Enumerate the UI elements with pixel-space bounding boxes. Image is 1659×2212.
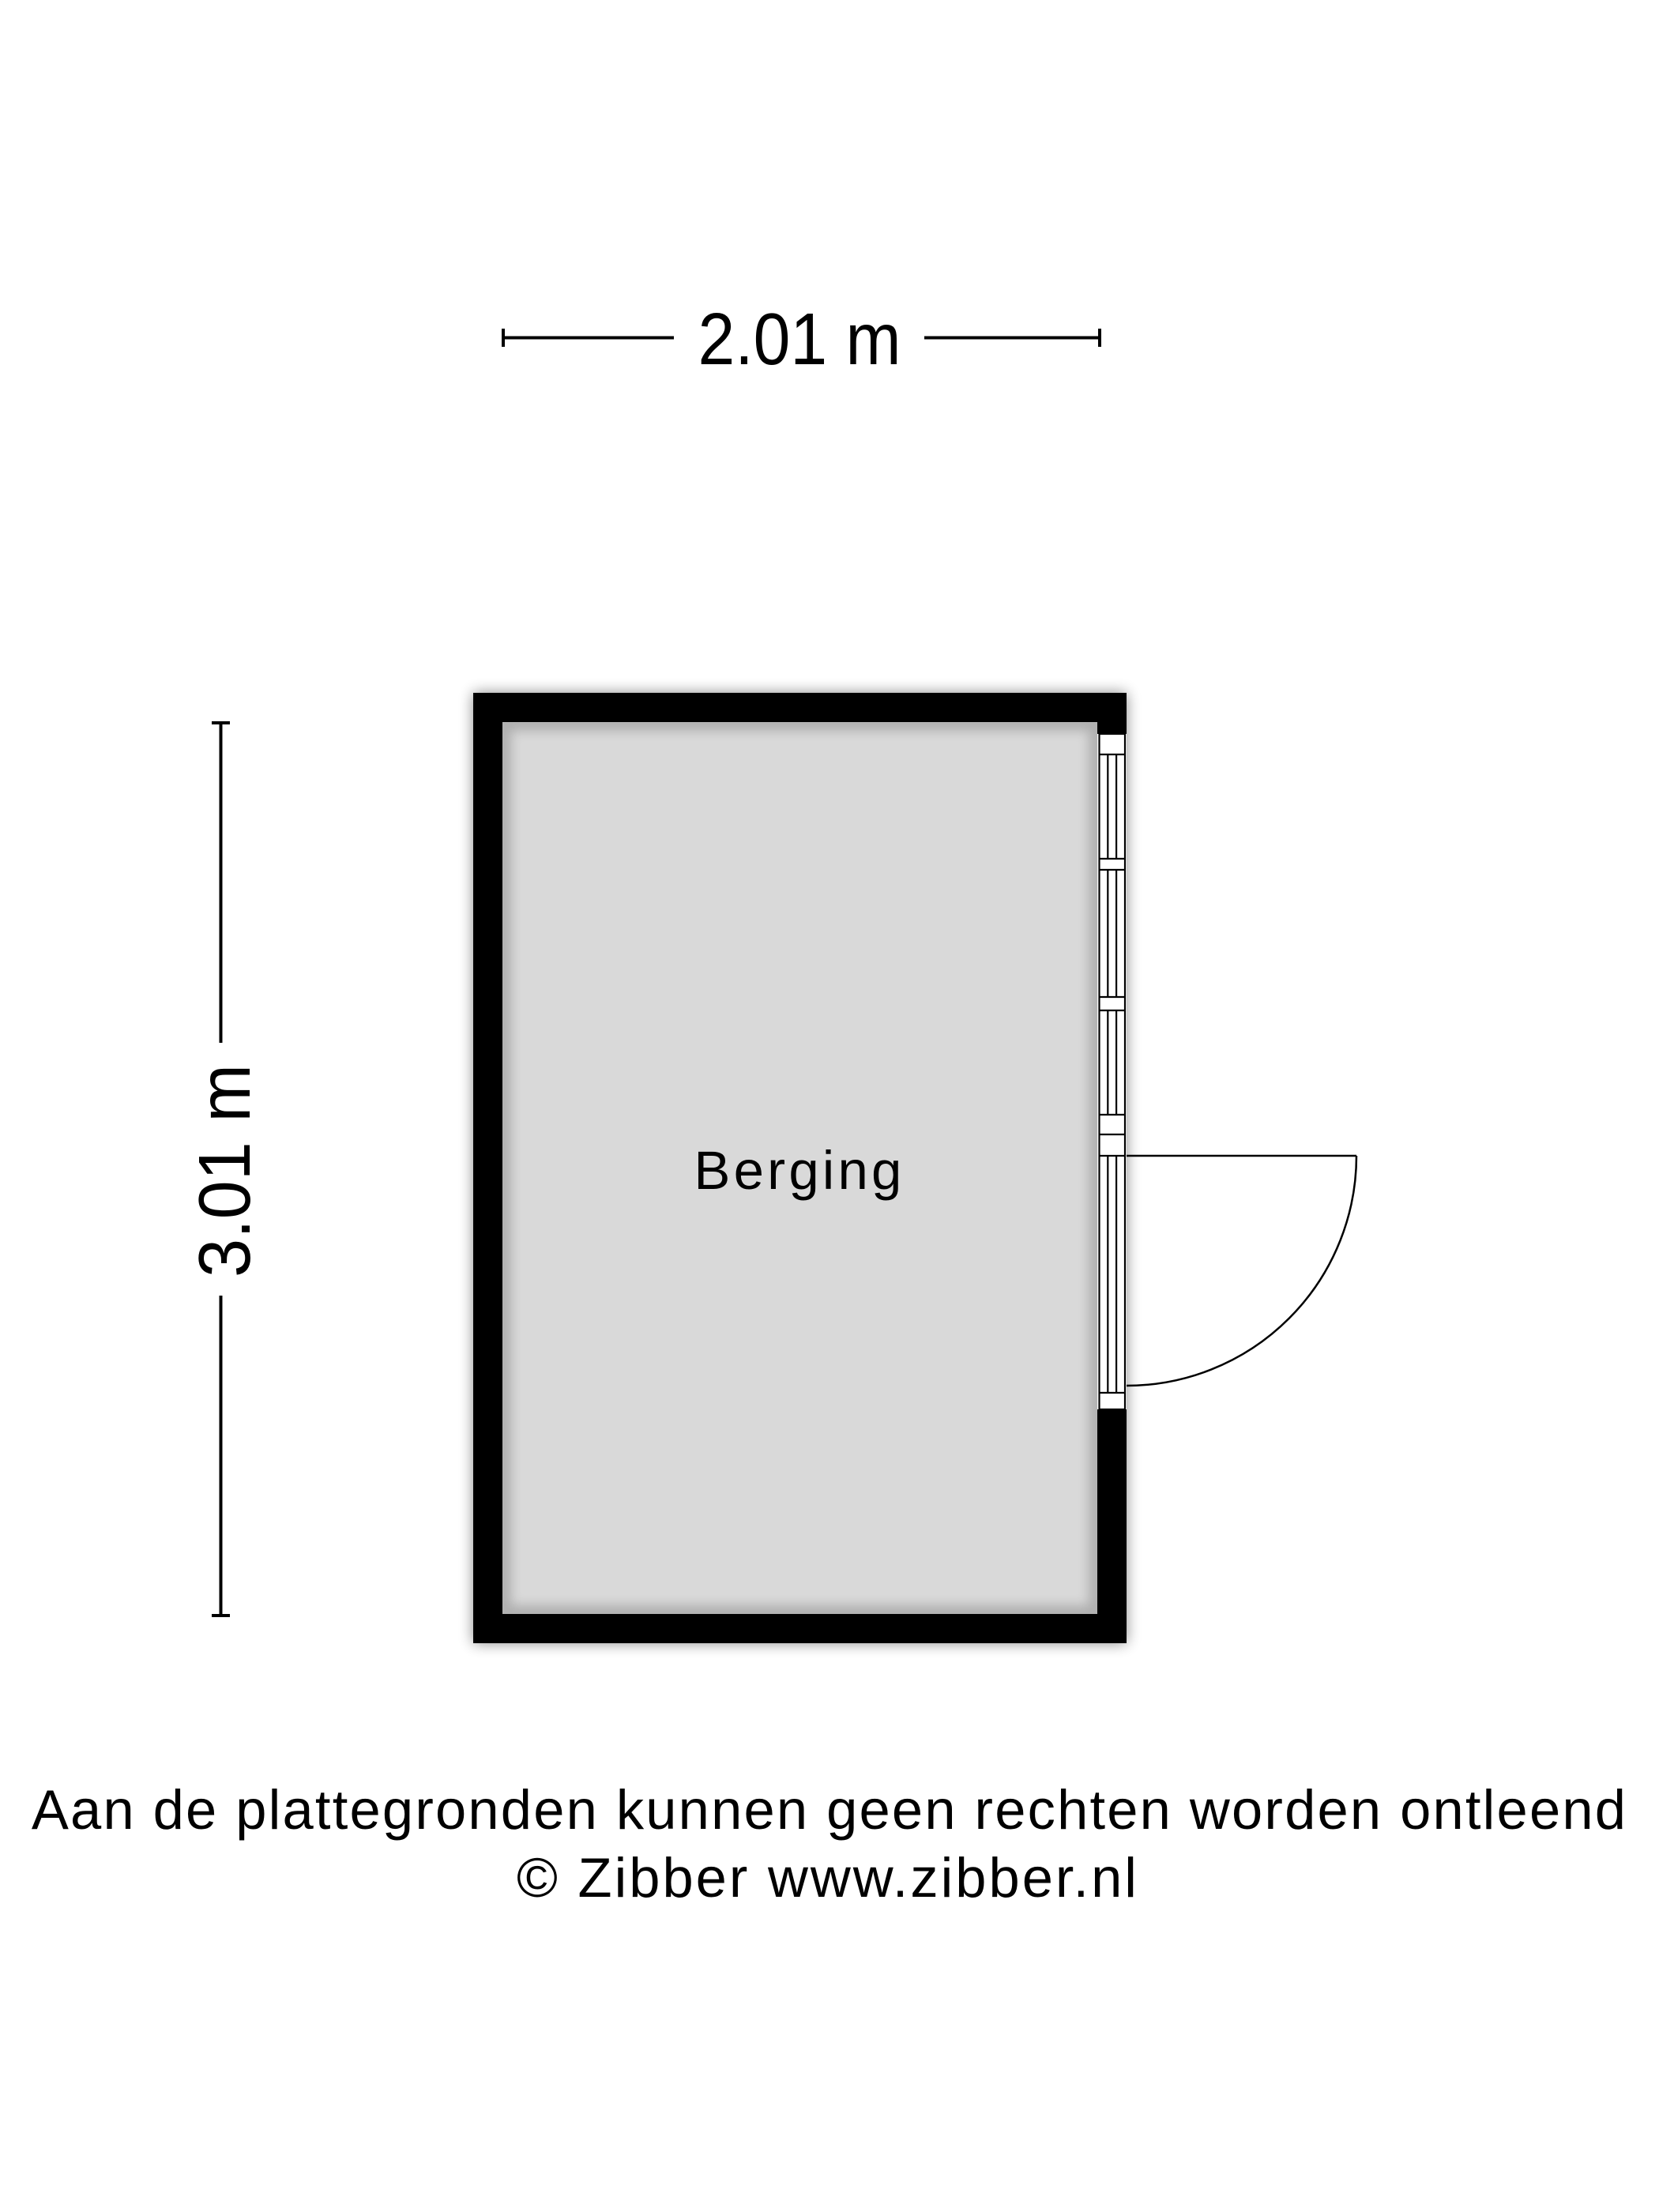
svg-text:© Zibber www.zibber.nl: © Zibber www.zibber.nl [517, 1846, 1139, 1909]
svg-text:Berging: Berging [694, 1140, 905, 1201]
svg-text:3.01 m: 3.01 m [183, 1064, 265, 1277]
svg-text:2.01 m: 2.01 m [698, 298, 901, 380]
svg-text:Aan de plattegronden kunnen ge: Aan de plattegronden kunnen geen rechten… [32, 1778, 1627, 1841]
